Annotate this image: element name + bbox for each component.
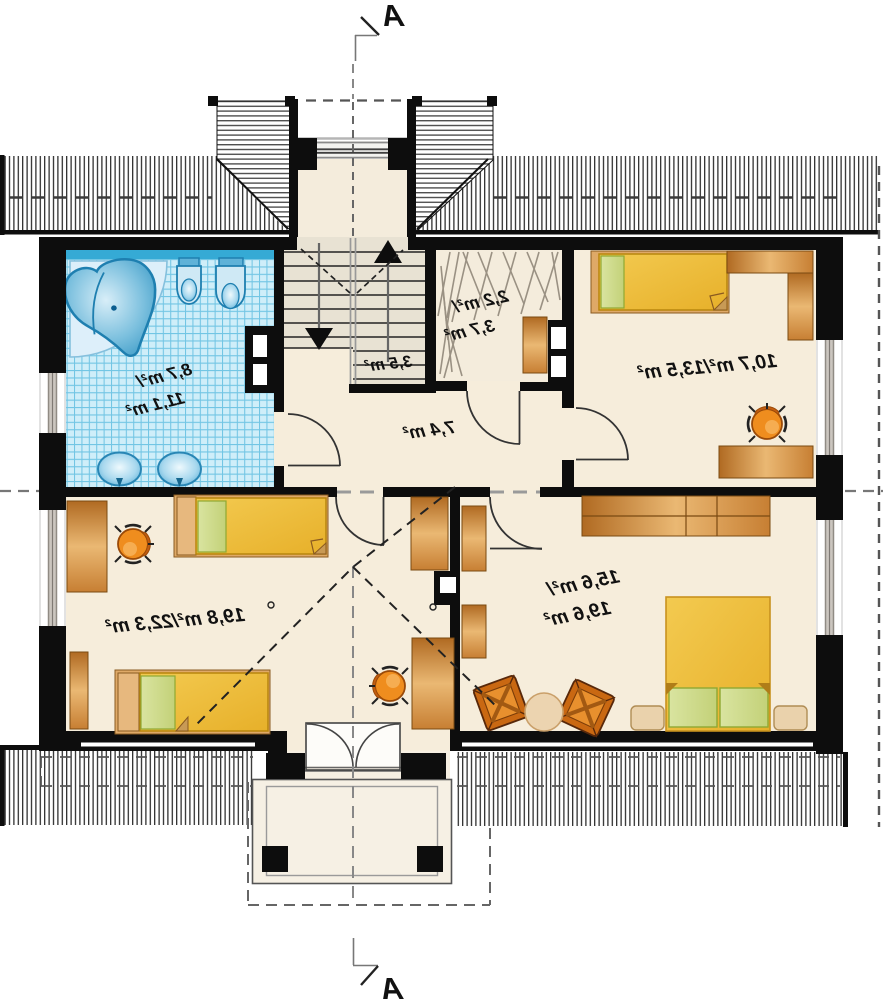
svg-text:A: A bbox=[381, 971, 404, 1000]
svg-text:A: A bbox=[382, 0, 405, 33]
